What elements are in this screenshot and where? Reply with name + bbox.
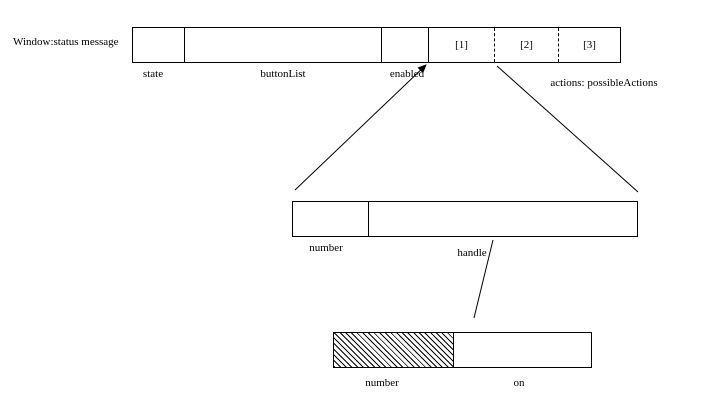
state-field-label: state xyxy=(143,69,163,80)
action-slot-1-cell: [1] xyxy=(428,28,494,62)
handle-number-field-label: number xyxy=(365,378,399,389)
action-slot-2-cell: [2] xyxy=(494,28,558,62)
field-buttonlist-cell xyxy=(184,28,381,62)
button-handle-cell xyxy=(368,202,637,236)
handle-record-bar xyxy=(333,332,592,368)
handle-on-cell xyxy=(453,333,591,367)
button-number-cell xyxy=(293,202,368,236)
button-handle-field-label: handle xyxy=(457,248,486,259)
window-record-bar: [1] [2] [3] xyxy=(132,27,621,63)
enabled-field-label: enabled xyxy=(390,69,424,80)
action-slot-3-label: [3] xyxy=(583,39,596,51)
action-slot-1-label: [1] xyxy=(455,39,468,51)
actions-field-label: actions: possibleActions xyxy=(550,78,657,89)
action-slot-2-label: [2] xyxy=(520,39,533,51)
action-slot-3-cell: [3] xyxy=(558,28,620,62)
handle-on-field-label: on xyxy=(514,378,525,389)
diagram-canvas: Window:status message [1] [2] [3] state … xyxy=(0,0,711,401)
field-state-cell xyxy=(133,28,184,62)
button-number-field-label: number xyxy=(309,243,343,254)
buttonlist-field-label: buttonList xyxy=(260,69,305,80)
handle-number-cell-hatched xyxy=(334,333,453,367)
window-record-title: Window:status message xyxy=(13,37,119,48)
button-record-bar xyxy=(292,201,638,237)
field-enabled-cell xyxy=(381,28,428,62)
expansion-line-left-with-arrowhead xyxy=(295,65,426,190)
